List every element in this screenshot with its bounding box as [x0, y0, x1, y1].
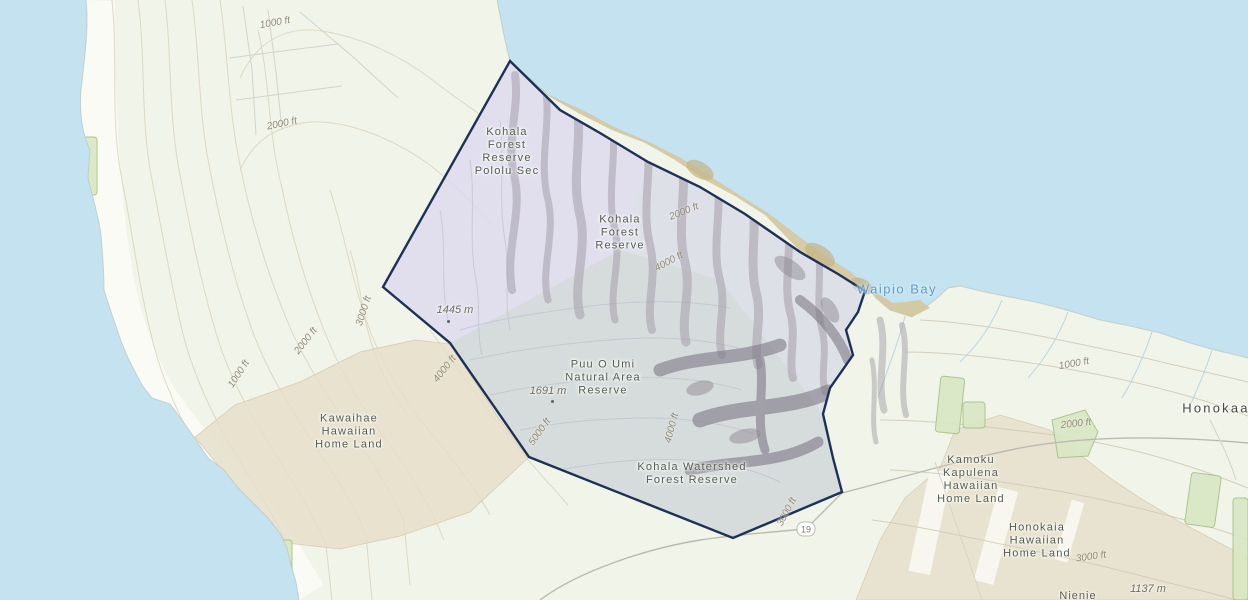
label-honokaa: Honokaa [1182, 401, 1248, 416]
elevation-1445m: 1445 m [437, 304, 474, 316]
label-kohala-watershed-forest-reserve: Kohala Watershed Forest Reserve [637, 461, 746, 487]
label-waipio-bay: Waipio Bay [857, 282, 937, 297]
map-base-layer [0, 0, 1248, 600]
label-kamoku-kapulena-hawaiian-home-land: Kamoku Kapulena Hawaiian Home Land [937, 454, 1005, 506]
label-honokaia-hawaiian-home-land: Honokaia Hawaiian Home Land [1003, 522, 1071, 561]
map-canvas[interactable]: Kohala Forest Reserve Pololu Sec Kohala … [0, 0, 1248, 600]
label-kawaihae-hawaiian-home-land: Kawaihae Hawaiian Home Land [315, 413, 383, 452]
label-kohala-forest-reserve: Kohala Forest Reserve [595, 214, 644, 253]
label-puu-o-umi-natural-area-reserve: Puu O Umi Natural Area Reserve [565, 359, 641, 398]
label-nienie: Nienie [1059, 590, 1096, 600]
elevation-1137m: 1137 m [1130, 583, 1166, 595]
label-kohala-forest-reserve-pololu-sec: Kohala Forest Reserve Pololu Sec [475, 126, 540, 178]
elevation-1691m: 1691 m [530, 385, 567, 397]
elevation-1691m-point [551, 400, 554, 403]
route-19-shield: 19 [797, 522, 816, 537]
elevation-1445m-point [447, 320, 450, 323]
